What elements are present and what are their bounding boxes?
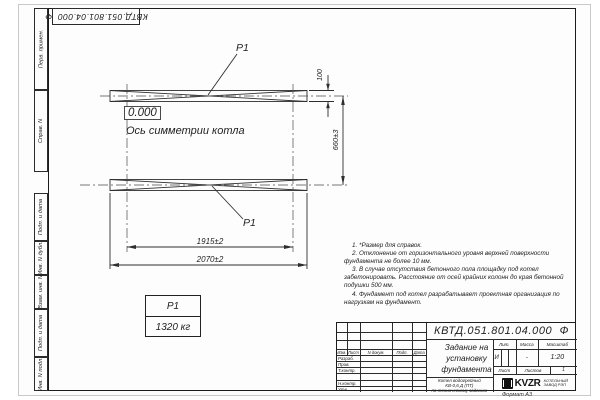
lit-label: Лит.: [493, 339, 516, 349]
list-label: Лист: [493, 366, 516, 374]
note-1: 1. *Размер для справок.: [344, 242, 569, 250]
load-table-header: Р1: [146, 296, 200, 317]
mass-value: -: [516, 349, 538, 366]
lit-value: И: [493, 349, 501, 366]
support-label-top: Р1: [236, 42, 249, 54]
listov-label: Листов: [516, 366, 550, 374]
kvzr-logo-icon: [502, 378, 513, 389]
title-block: КВТД.051.801.04.000 Ф Изм. Лист N докум.…: [336, 322, 576, 391]
dim-beams-spacing: 660±3: [331, 120, 341, 160]
axis-caption: Ось симметрии котла: [126, 125, 245, 137]
note-2: 2. Отклонение от горизонтального уровня …: [344, 250, 569, 266]
col-data: Дата: [412, 349, 426, 355]
row-utv: Утв.: [338, 386, 360, 392]
row-tkontr: Т.контр.: [338, 367, 360, 373]
designation: КВТД.051.801.04.000 Ф: [426, 323, 577, 339]
notes-block: 1. *Размер для справок. 2. Отклонение от…: [344, 242, 569, 307]
company-cell: KVZR КОТЕЛЬНЫЙ ЗАВОД РЭП: [493, 374, 577, 392]
company-line2: ЗАВОД РЭП: [544, 383, 569, 387]
listov-value: 1: [550, 366, 577, 374]
leader-top: [208, 54, 237, 95]
dim-beam-length: 2070±2: [170, 255, 250, 264]
format-label: Формат А3: [492, 392, 542, 398]
dim-columns-span: 1915±2: [170, 237, 250, 246]
col-podp: Подп.: [392, 349, 413, 355]
load-table-value: 1320 кг: [146, 317, 200, 337]
product-line3: по техническому заданию: [426, 388, 493, 393]
note-4: 4. Фундамент под котел разрабатывает про…: [344, 291, 569, 307]
logo-text: KVZR: [515, 378, 541, 389]
scale-value: 1:20: [538, 349, 577, 366]
elevation-mark: 0.000: [124, 106, 161, 120]
col-ndoc: N докум.: [360, 349, 392, 355]
note-3: 3. В случае отсутствия бетонного пола пл…: [344, 266, 569, 290]
drawing-sheet: Перв. примен. Справ. N Подп. и дата Инв.…: [0, 0, 600, 400]
scale-label: Масштаб: [538, 339, 577, 349]
support-label-bottom: Р1: [243, 217, 256, 229]
load-table: Р1 1320 кг: [145, 295, 201, 337]
mass-label: Масса: [516, 339, 538, 349]
dim-beam-height: 100: [317, 60, 327, 90]
